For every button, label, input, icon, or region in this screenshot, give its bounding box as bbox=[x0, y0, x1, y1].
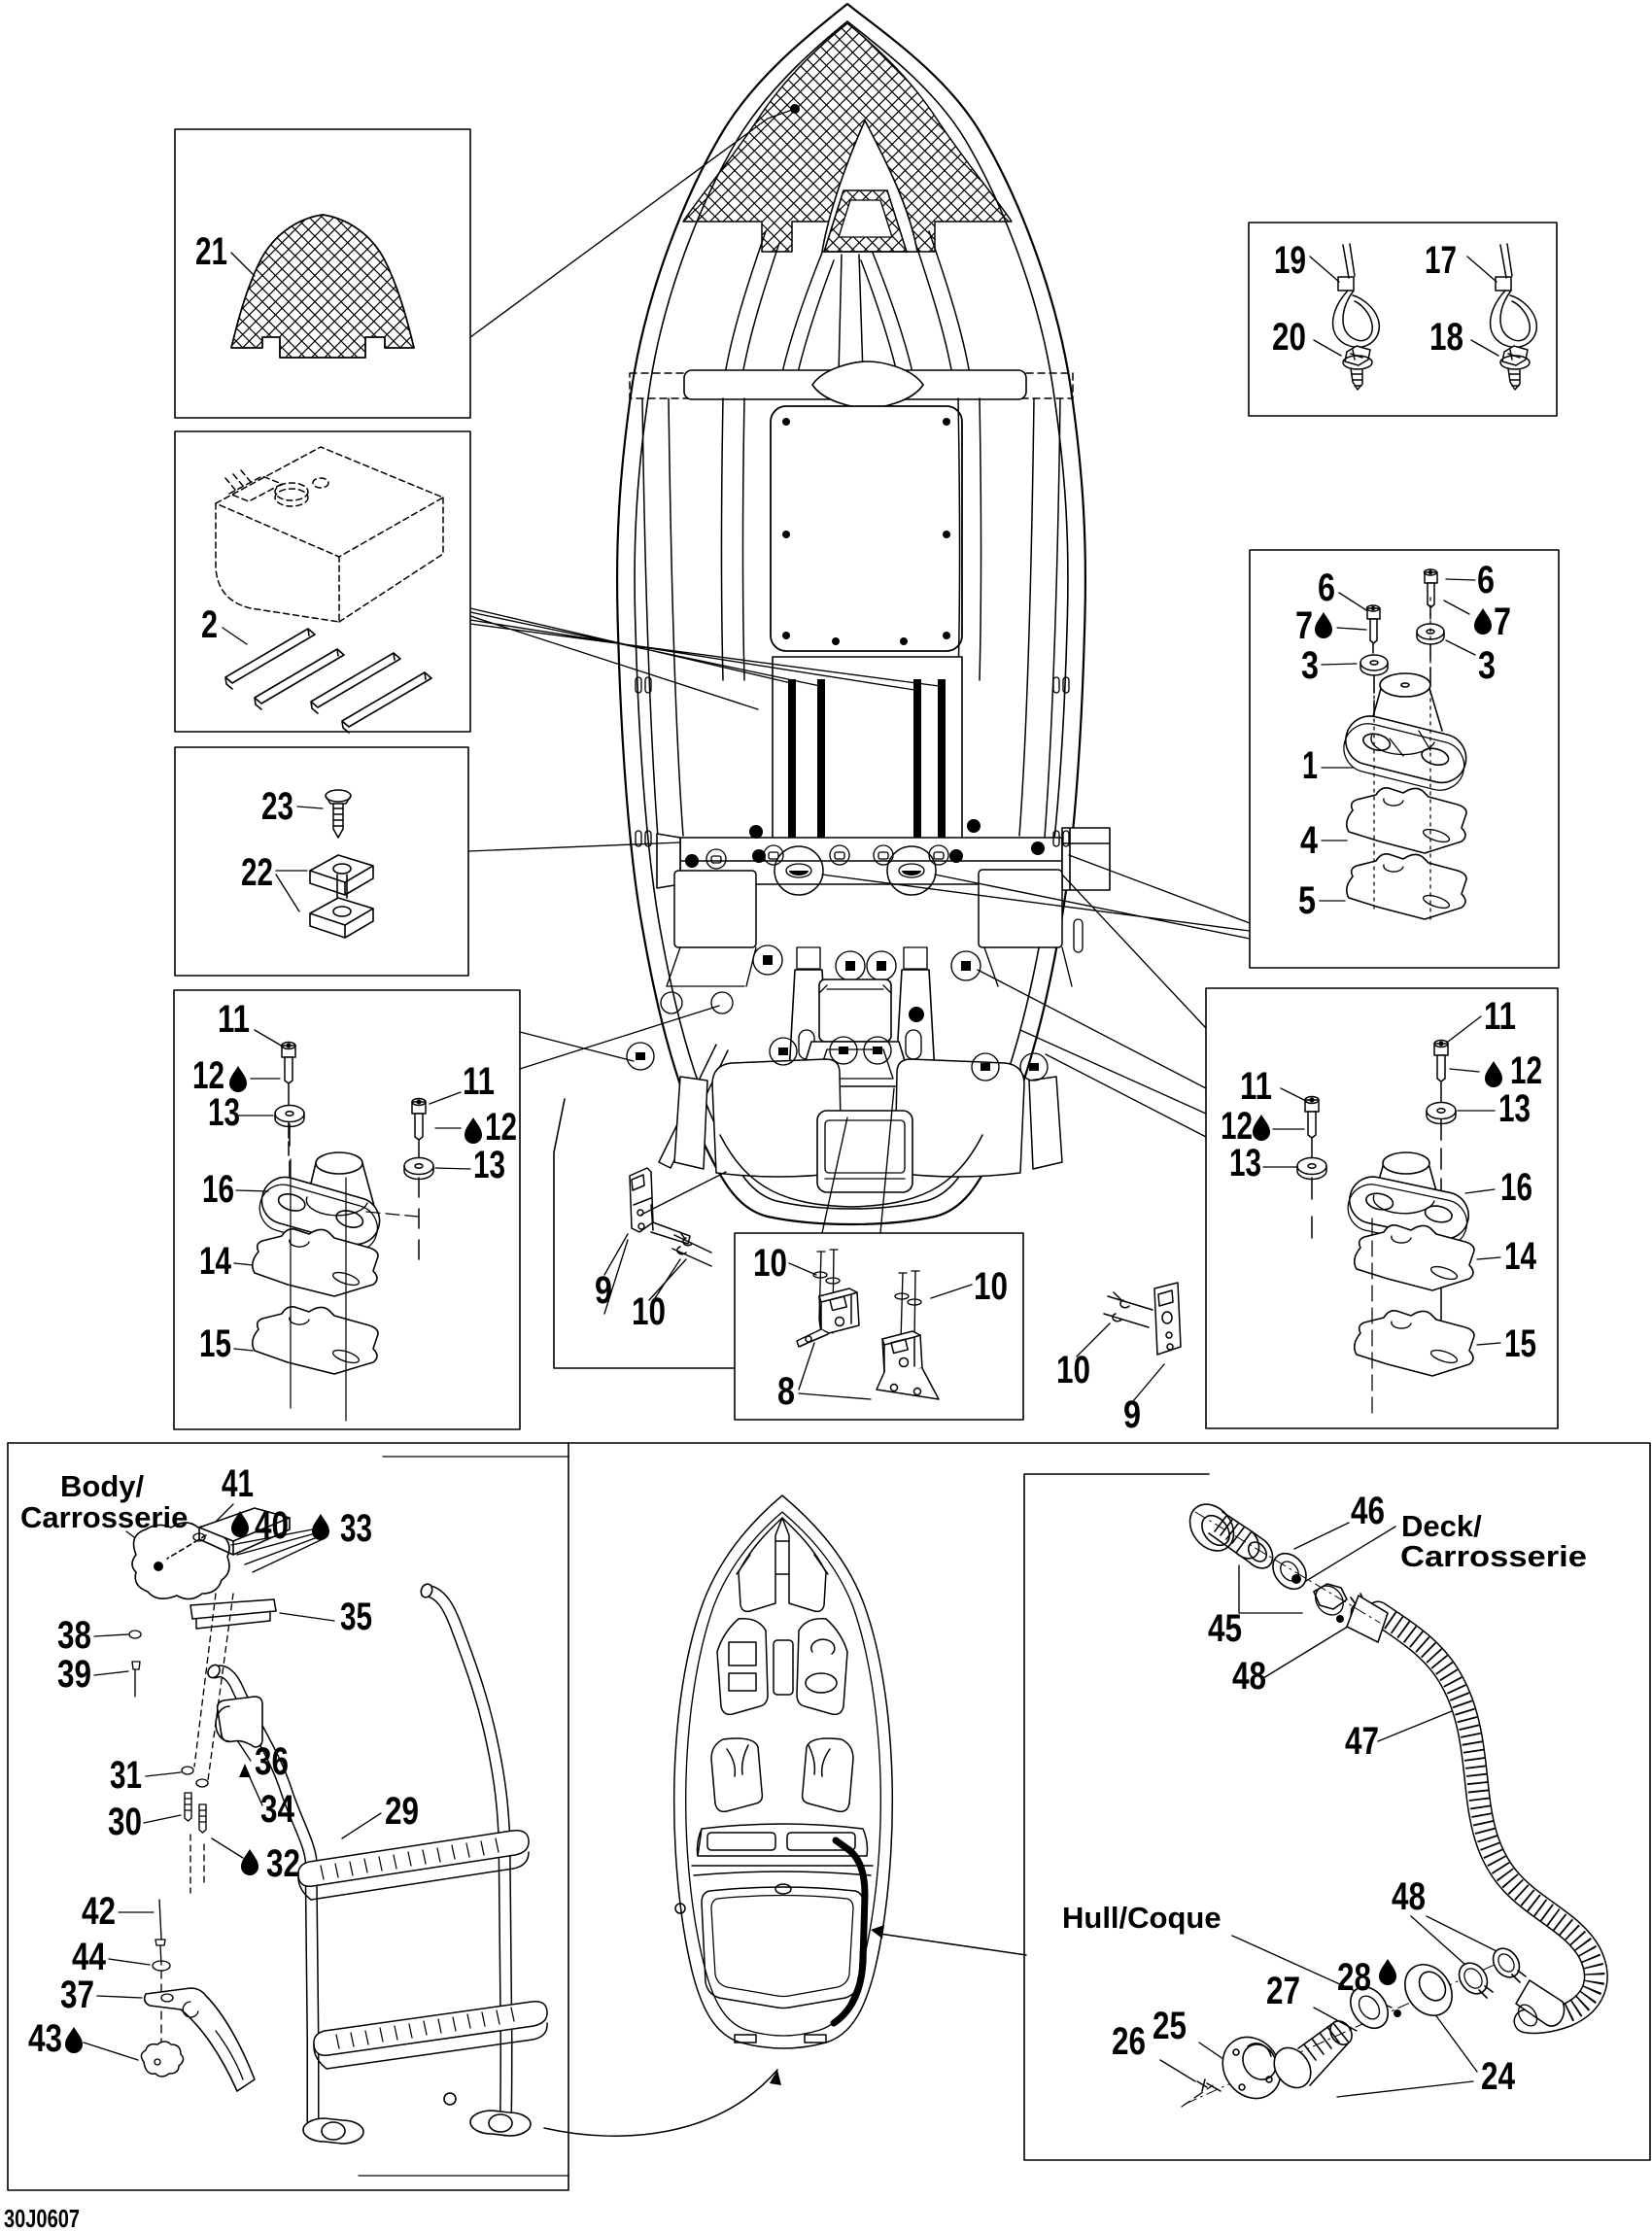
svg-text:19: 19 bbox=[1274, 239, 1306, 282]
svg-text:18: 18 bbox=[1429, 316, 1463, 359]
svg-text:5: 5 bbox=[1298, 879, 1316, 922]
svg-text:14: 14 bbox=[199, 1240, 232, 1283]
svg-text:20: 20 bbox=[1272, 316, 1306, 359]
svg-text:11: 11 bbox=[218, 998, 250, 1041]
svg-text:13: 13 bbox=[473, 1144, 505, 1186]
svg-text:Carrosserie: Carrosserie bbox=[20, 1500, 188, 1534]
svg-text:48: 48 bbox=[1392, 1875, 1426, 1918]
svg-text:39: 39 bbox=[57, 1653, 91, 1696]
svg-text:21: 21 bbox=[195, 230, 227, 273]
svg-text:29: 29 bbox=[385, 1790, 419, 1833]
svg-text:15: 15 bbox=[199, 1322, 231, 1365]
svg-text:17: 17 bbox=[1425, 239, 1457, 282]
svg-text:Body/: Body/ bbox=[60, 1469, 145, 1503]
svg-text:32: 32 bbox=[266, 1842, 300, 1885]
svg-text:31: 31 bbox=[110, 1754, 142, 1797]
svg-text:11: 11 bbox=[463, 1060, 495, 1103]
svg-text:11: 11 bbox=[1240, 1065, 1272, 1108]
svg-text:Hull/Coque: Hull/Coque bbox=[1062, 1901, 1222, 1935]
svg-text:10: 10 bbox=[632, 1290, 666, 1333]
svg-text:11: 11 bbox=[1484, 995, 1516, 1038]
svg-text:42: 42 bbox=[82, 1890, 116, 1933]
svg-text:1: 1 bbox=[1302, 744, 1318, 787]
svg-text:43: 43 bbox=[28, 2017, 62, 2060]
svg-text:6: 6 bbox=[1477, 559, 1495, 601]
svg-text:23: 23 bbox=[261, 785, 293, 828]
svg-text:40: 40 bbox=[255, 1504, 289, 1547]
svg-text:25: 25 bbox=[1153, 2005, 1187, 2047]
svg-text:6: 6 bbox=[1318, 567, 1335, 609]
svg-text:9: 9 bbox=[1123, 1393, 1141, 1436]
svg-text:3: 3 bbox=[1478, 644, 1496, 687]
svg-text:2: 2 bbox=[201, 603, 218, 646]
svg-text:15: 15 bbox=[1504, 1322, 1536, 1365]
svg-text:13: 13 bbox=[208, 1091, 240, 1134]
svg-text:10: 10 bbox=[753, 1242, 787, 1285]
svg-text:16: 16 bbox=[1500, 1166, 1532, 1209]
svg-text:27: 27 bbox=[1266, 1970, 1300, 2012]
svg-text:14: 14 bbox=[1504, 1235, 1537, 1278]
svg-text:13: 13 bbox=[1229, 1142, 1261, 1185]
svg-text:10: 10 bbox=[974, 1265, 1008, 1308]
svg-text:34: 34 bbox=[260, 1788, 295, 1831]
svg-text:12: 12 bbox=[1510, 1049, 1542, 1092]
svg-text:28: 28 bbox=[1337, 1956, 1371, 1999]
svg-text:26: 26 bbox=[1112, 2020, 1146, 2063]
svg-text:41: 41 bbox=[222, 1462, 254, 1505]
svg-text:44: 44 bbox=[72, 1936, 107, 1978]
svg-text:45: 45 bbox=[1208, 1607, 1242, 1650]
svg-text:38: 38 bbox=[57, 1614, 91, 1657]
svg-text:37: 37 bbox=[60, 1974, 94, 2016]
svg-text:46: 46 bbox=[1351, 1490, 1385, 1532]
svg-text:7: 7 bbox=[1295, 604, 1313, 647]
svg-text:36: 36 bbox=[255, 1740, 289, 1783]
svg-text:22: 22 bbox=[241, 851, 273, 894]
svg-text:Carrosserie: Carrosserie bbox=[1400, 1539, 1587, 1573]
svg-text:16: 16 bbox=[202, 1168, 234, 1211]
svg-text:33: 33 bbox=[340, 1507, 372, 1550]
svg-text:3: 3 bbox=[1301, 644, 1319, 687]
svg-text:47: 47 bbox=[1345, 1720, 1379, 1763]
svg-text:24: 24 bbox=[1481, 2055, 1516, 2098]
svg-text:30: 30 bbox=[108, 1801, 142, 1843]
svg-text:8: 8 bbox=[777, 1370, 795, 1413]
svg-text:48: 48 bbox=[1232, 1655, 1266, 1698]
svg-text:Deck/: Deck/ bbox=[1401, 1509, 1482, 1543]
svg-text:10: 10 bbox=[1056, 1349, 1090, 1391]
svg-text:13: 13 bbox=[1498, 1087, 1531, 1130]
svg-text:7: 7 bbox=[1494, 601, 1511, 643]
svg-text:9: 9 bbox=[595, 1269, 612, 1312]
svg-text:12: 12 bbox=[485, 1106, 517, 1149]
svg-text:35: 35 bbox=[340, 1596, 372, 1638]
svg-text:4: 4 bbox=[1300, 819, 1319, 862]
svg-text:30J0607: 30J0607 bbox=[4, 2204, 80, 2232]
